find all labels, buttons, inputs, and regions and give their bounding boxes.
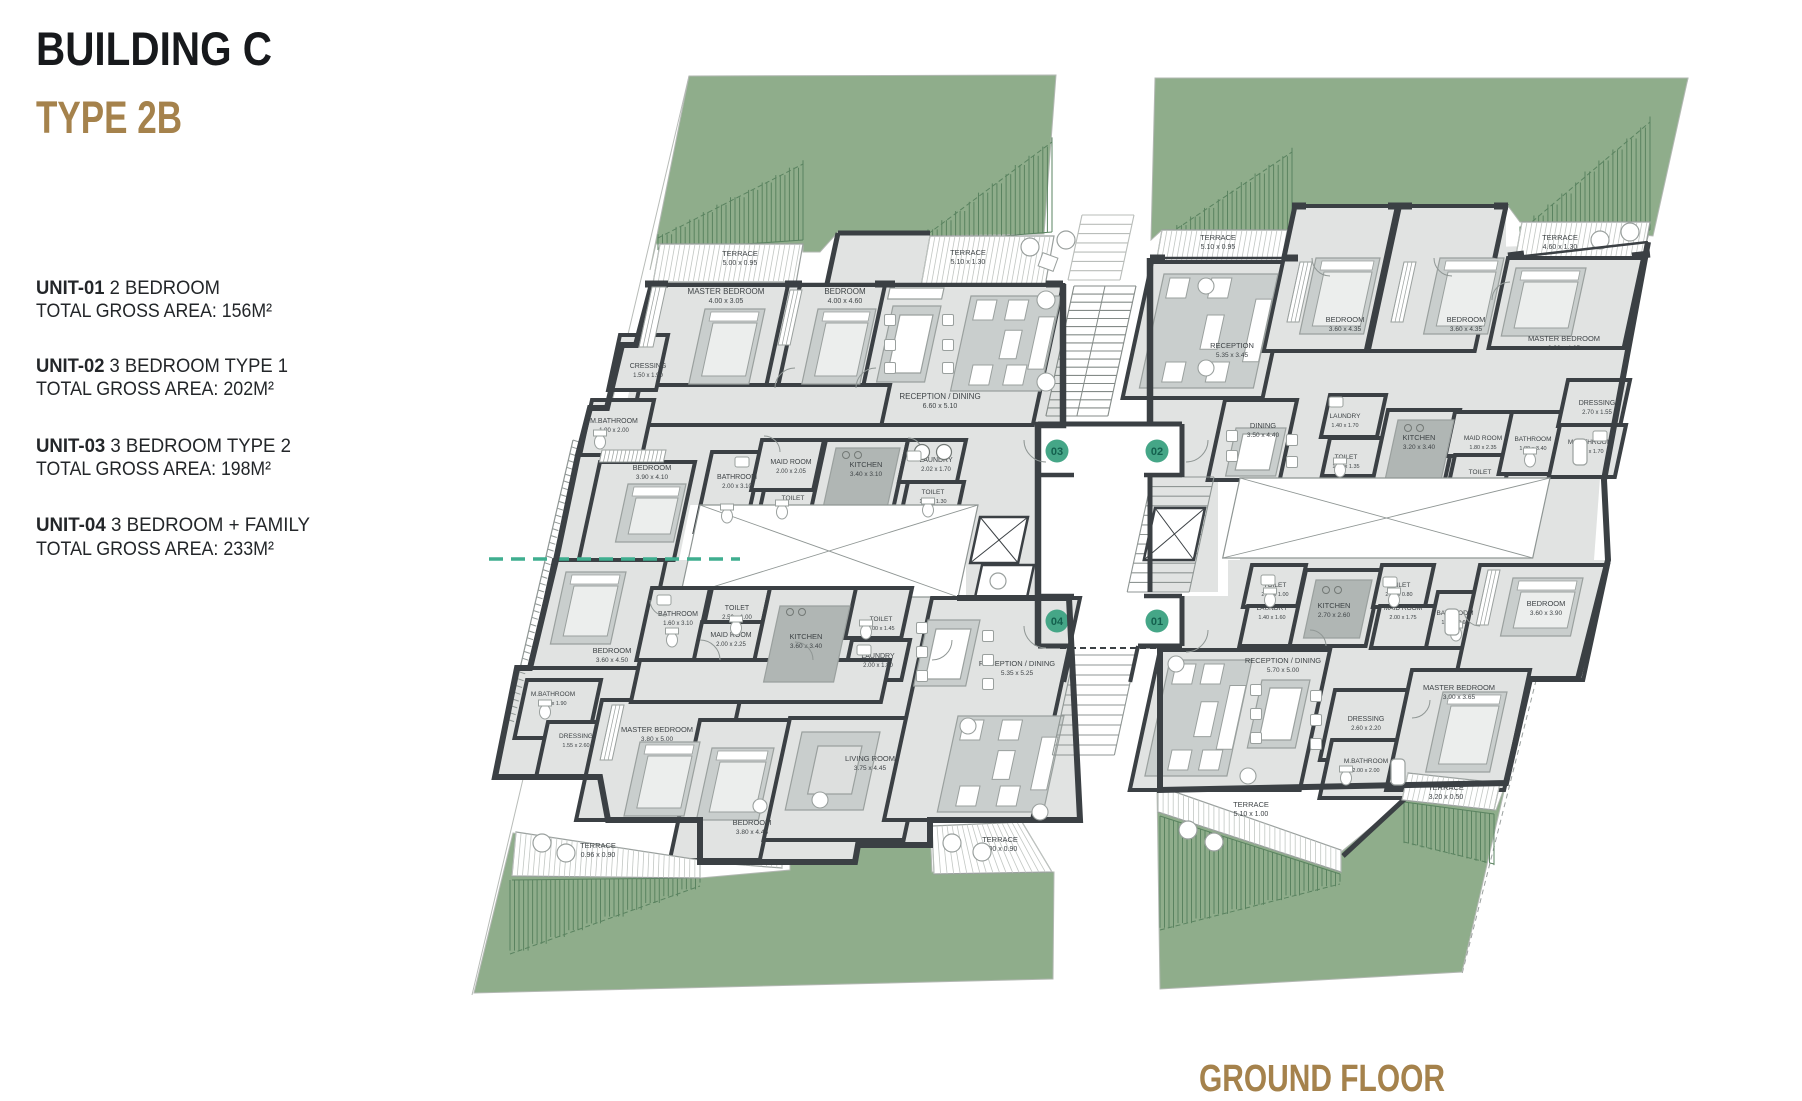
- svg-text:03: 03: [1051, 446, 1063, 458]
- svg-text:LAUNDRY: LAUNDRY: [1330, 413, 1362, 420]
- svg-text:DRESSING: DRESSING: [1579, 400, 1616, 407]
- svg-text:3.20 x 0.50: 3.20 x 0.50: [1429, 794, 1464, 801]
- svg-text:6.60 x 5.10: 6.60 x 5.10: [923, 403, 958, 410]
- svg-text:TOILET: TOILET: [870, 616, 893, 623]
- svg-text:TOTAL GROSS AREA: 156M²: TOTAL GROSS AREA: 156M²: [36, 300, 272, 322]
- svg-text:1.80 x 2.35: 1.80 x 2.35: [1469, 445, 1496, 451]
- svg-text:1.50 x 1.90: 1.50 x 1.90: [633, 373, 663, 379]
- svg-text:BEDROOM: BEDROOM: [1447, 315, 1486, 324]
- svg-text:2.00 x 2.25: 2.00 x 2.25: [716, 642, 746, 648]
- svg-text:5.35 x 5.25: 5.35 x 5.25: [1001, 670, 1034, 677]
- svg-text:2.00 x 1.75: 2.00 x 1.75: [1389, 615, 1416, 621]
- svg-text:3.60 x 4.35: 3.60 x 4.35: [1450, 326, 1483, 333]
- svg-text:1.40 x 1.60: 1.40 x 1.60: [1258, 615, 1285, 621]
- svg-text:5.10 x 0.95: 5.10 x 0.95: [1201, 244, 1236, 251]
- svg-text:3.90 x 3.65: 3.90 x 3.65: [1443, 694, 1476, 701]
- svg-text:GROUND FLOOR: GROUND FLOOR: [1199, 1058, 1445, 1096]
- svg-text:DRESSING: DRESSING: [559, 733, 593, 740]
- svg-text:BEDROOM: BEDROOM: [1527, 599, 1566, 608]
- svg-text:2.02 x 1.70: 2.02 x 1.70: [921, 467, 951, 473]
- svg-text:2.70 x 2.60: 2.70 x 2.60: [1318, 612, 1351, 619]
- svg-text:TERRACE: TERRACE: [1233, 800, 1269, 809]
- svg-text:2.00 x 2.00: 2.00 x 2.00: [1352, 768, 1379, 774]
- svg-text:TOTAL GROSS AREA: 202M²: TOTAL GROSS AREA: 202M²: [36, 378, 274, 400]
- svg-text:MAID ROOM: MAID ROOM: [770, 459, 811, 466]
- svg-text:5.00 x 0.95: 5.00 x 0.95: [723, 260, 758, 267]
- svg-text:0.96 x 0.90: 0.96 x 0.90: [581, 852, 616, 859]
- svg-text:3.90 x 4.65: 3.90 x 4.65: [1548, 345, 1581, 352]
- svg-text:UNIT-03 3 BEDROOM TYPE 2: UNIT-03 3 BEDROOM TYPE 2: [36, 435, 291, 457]
- svg-text:3.40 x 3.10: 3.40 x 3.10: [850, 471, 883, 478]
- svg-text:TYPE 2B: TYPE 2B: [36, 92, 182, 143]
- svg-text:3.60 x 4.50: 3.60 x 4.50: [596, 657, 629, 664]
- svg-text:M.BATHROOM: M.BATHROOM: [590, 418, 638, 425]
- svg-text:LIVING ROOM: LIVING ROOM: [845, 754, 895, 763]
- svg-text:M.BATHROOM: M.BATHROOM: [531, 691, 575, 698]
- svg-text:3.90 x 4.10: 3.90 x 4.10: [636, 474, 669, 481]
- svg-text:MAID ROOM: MAID ROOM: [1384, 605, 1422, 612]
- svg-text:MASTER BEDROOM: MASTER BEDROOM: [1423, 683, 1495, 692]
- svg-text:TOTAL GROSS AREA: 198M²: TOTAL GROSS AREA: 198M²: [36, 458, 271, 480]
- svg-text:1.60 x 3.10: 1.60 x 3.10: [663, 621, 693, 627]
- svg-text:3.20 x 3.40: 3.20 x 3.40: [1403, 444, 1436, 451]
- svg-text:5.10 x 1.00: 5.10 x 1.00: [1234, 811, 1269, 818]
- svg-text:BEDROOM: BEDROOM: [733, 818, 772, 827]
- svg-text:KITCHEN: KITCHEN: [850, 460, 883, 469]
- svg-text:UNIT-01 2 BEDROOM: UNIT-01 2 BEDROOM: [36, 277, 220, 299]
- svg-text:TOILET: TOILET: [922, 489, 945, 496]
- svg-text:3.80 x 5.00: 3.80 x 5.00: [641, 736, 674, 743]
- svg-text:TERRACE: TERRACE: [1542, 233, 1578, 242]
- svg-text:2.00 x 1.80: 2.00 x 1.80: [863, 663, 893, 669]
- svg-text:2.60 x 2.20: 2.60 x 2.20: [1351, 726, 1381, 732]
- svg-text:BEDROOM: BEDROOM: [633, 463, 672, 472]
- svg-text:1.55 x 2.60: 1.55 x 2.60: [562, 743, 589, 749]
- svg-text:TERRACE: TERRACE: [982, 835, 1018, 844]
- svg-text:BEDROOM: BEDROOM: [593, 646, 632, 655]
- svg-text:TOILET: TOILET: [725, 605, 750, 612]
- svg-text:3.75 x 4.45: 3.75 x 4.45: [854, 765, 887, 772]
- svg-text:MASTER BEDROOM: MASTER BEDROOM: [621, 725, 693, 734]
- svg-text:3.80 x 4.45: 3.80 x 4.45: [736, 829, 769, 836]
- svg-text:MAID ROOM: MAID ROOM: [1464, 435, 1502, 442]
- svg-text:TERRACE: TERRACE: [950, 248, 986, 257]
- svg-text:04: 04: [1051, 616, 1064, 628]
- svg-text:TOILET: TOILET: [1469, 469, 1492, 476]
- svg-text:BATHROOM: BATHROOM: [658, 611, 698, 618]
- svg-text:RECEPTION / DINING: RECEPTION / DINING: [1245, 656, 1321, 665]
- svg-text:4.00 x 4.60: 4.00 x 4.60: [828, 298, 863, 305]
- svg-text:DRESSING: DRESSING: [1348, 716, 1385, 723]
- svg-text:1.40 x 1.70: 1.40 x 1.70: [1331, 423, 1358, 429]
- svg-text:RECEPTION / DINING: RECEPTION / DINING: [899, 392, 980, 401]
- svg-text:DINING: DINING: [1250, 421, 1276, 430]
- svg-text:CRESSING: CRESSING: [630, 363, 667, 370]
- svg-text:3.60 x 3.90: 3.60 x 3.90: [1530, 610, 1563, 617]
- svg-text:TOTAL GROSS AREA: 233M²: TOTAL GROSS AREA: 233M²: [36, 538, 274, 560]
- svg-text:BEDROOM: BEDROOM: [824, 287, 866, 296]
- svg-text:5.35 x 3.45: 5.35 x 3.45: [1216, 352, 1249, 359]
- svg-text:UNIT-02 3 BEDROOM TYPE 1: UNIT-02 3 BEDROOM TYPE 1: [36, 355, 288, 377]
- svg-text:TERRACE: TERRACE: [722, 249, 758, 258]
- svg-text:MAID ROOM: MAID ROOM: [710, 632, 751, 639]
- svg-text:5.70 x 5.00: 5.70 x 5.00: [1267, 667, 1300, 674]
- svg-text:KITCHEN: KITCHEN: [1318, 601, 1351, 610]
- svg-text:3.60 x 4.35: 3.60 x 4.35: [1329, 326, 1362, 333]
- svg-text:UNIT-04 3 BEDROOM + FAMILY: UNIT-04 3 BEDROOM + FAMILY: [36, 514, 310, 536]
- svg-text:2.00 x 3.10: 2.00 x 3.10: [722, 484, 752, 490]
- svg-text:2.70 x 1.55: 2.70 x 1.55: [1582, 410, 1612, 416]
- svg-text:BEDROOM: BEDROOM: [1326, 315, 1365, 324]
- svg-text:KITCHEN: KITCHEN: [1403, 433, 1436, 442]
- svg-text:RECEPTION: RECEPTION: [1210, 341, 1254, 350]
- svg-text:TERRACE: TERRACE: [580, 841, 616, 850]
- svg-text:5.10 x 1.30: 5.10 x 1.30: [951, 259, 986, 266]
- svg-text:BUILDING C: BUILDING C: [36, 22, 272, 75]
- svg-text:TERRACE: TERRACE: [1200, 233, 1236, 242]
- svg-text:3.50 x 4.40: 3.50 x 4.40: [1247, 432, 1280, 439]
- svg-text:MASTER BEDROOM: MASTER BEDROOM: [688, 287, 765, 296]
- svg-text:2.00 x 2.05: 2.00 x 2.05: [776, 469, 806, 475]
- svg-text:BATHROOM: BATHROOM: [1514, 436, 1551, 443]
- svg-text:KITCHEN: KITCHEN: [790, 632, 823, 641]
- svg-text:BATHROOM: BATHROOM: [717, 474, 757, 481]
- svg-text:4.00 x 3.05: 4.00 x 3.05: [709, 298, 744, 305]
- svg-text:02: 02: [1151, 446, 1163, 458]
- svg-text:01: 01: [1151, 616, 1163, 628]
- svg-text:M.BATHROOM: M.BATHROOM: [1344, 758, 1388, 765]
- svg-text:MASTER BEDROOM: MASTER BEDROOM: [1528, 334, 1600, 343]
